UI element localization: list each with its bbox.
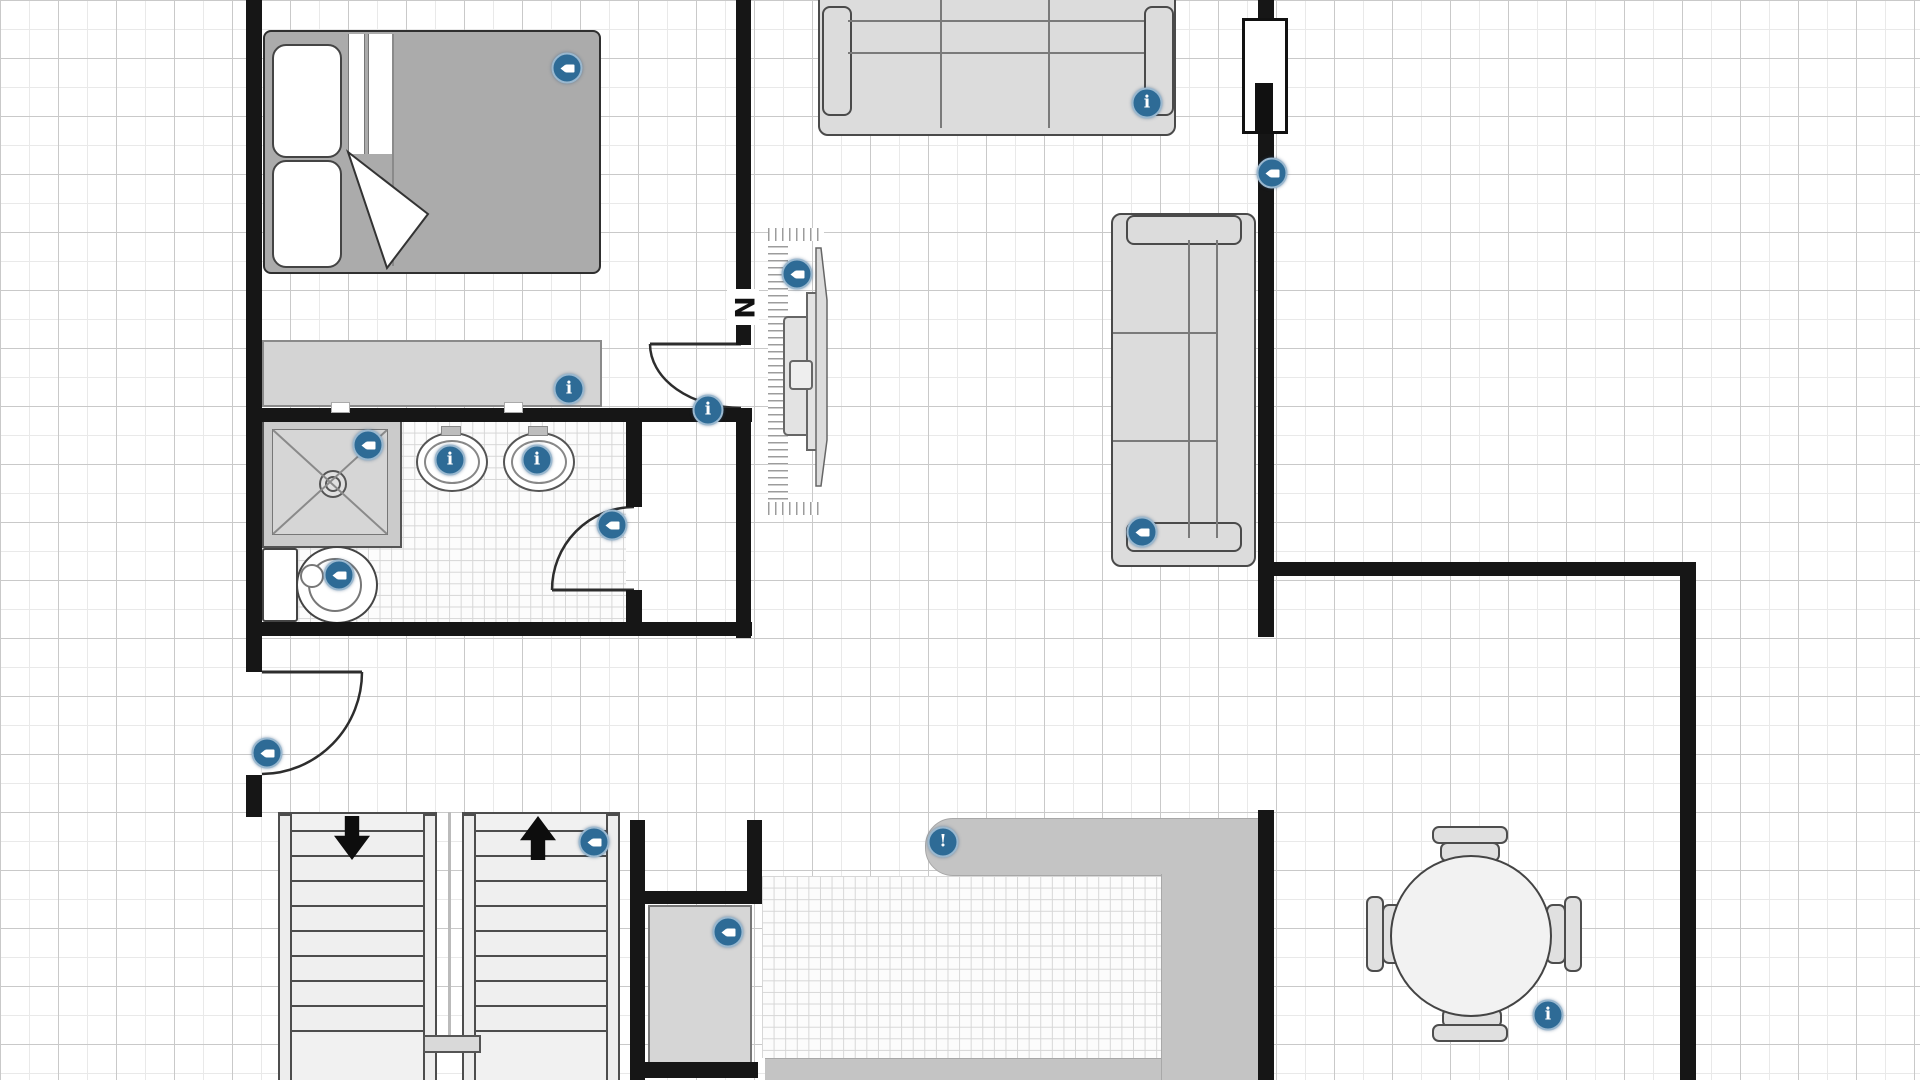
camera-icon [587,838,601,846]
wall-below-cabinet[interactable] [643,1062,758,1078]
wall-east[interactable] [1680,562,1696,1080]
camera-icon [790,270,804,278]
stair-treads [292,830,423,1034]
sofa-top-cushion-divider [1048,0,1050,128]
stair-gap-rail [448,812,451,1042]
fireplace-knob [789,360,813,390]
kitchen-counter-marker[interactable]: ! [928,827,959,858]
shower-marker[interactable] [353,430,384,461]
wall-hall-north[interactable] [1262,562,1694,576]
stair-treads [476,830,606,1034]
camera-icon [605,521,619,529]
info-icon: i [1144,95,1150,112]
sink-right-marker[interactable]: i [522,445,553,476]
fireplace-hatch-top [768,228,824,241]
living-window-marker[interactable] [1257,158,1288,189]
fireplace-marker[interactable] [782,259,813,290]
bed-blanket-edge [392,34,394,266]
wall-center-upper[interactable] [736,0,751,293]
double-bed[interactable] [263,30,601,274]
bed-pillow-bottom [272,160,342,268]
sofa-right-seat-line [1188,240,1190,538]
sofa-top-back-line [848,20,1144,22]
bathroom-door-marker[interactable] [597,510,628,541]
bedroom-door-swing-arc [650,344,741,408]
toilet-marker[interactable] [324,560,355,591]
dining-chair-back [1564,896,1582,972]
dresser-marker[interactable]: i [554,374,585,405]
bed-marker[interactable] [552,53,583,84]
bed-pillow-top [272,44,342,158]
sofa-right[interactable] [1111,213,1256,567]
staircase-down[interactable] [278,812,437,1080]
sofa-top-seat-line [848,52,1144,54]
wall-left-upper[interactable] [246,0,262,672]
north-indicator: N [727,289,759,325]
shower-drain-inner [325,476,341,492]
wall-center-lower[interactable] [736,408,751,638]
toilet-flush [300,564,324,588]
wall-niche-top[interactable] [643,891,755,904]
sink-faucet [528,426,548,436]
kitchen-floor-tiles [762,876,1161,1058]
cabinet-marker[interactable] [713,917,744,948]
stair-landing-bar [423,1035,481,1053]
sofa-right-back-line [1216,240,1218,538]
wall-left-lower[interactable] [246,775,262,817]
sofa-top-marker[interactable]: i [1132,88,1163,119]
stairs-marker[interactable] [579,827,610,858]
info-icon: i [447,452,453,469]
toilet-tank[interactable] [262,548,298,622]
bed-sheet-stripe [348,34,365,154]
info-icon: i [705,402,711,419]
sofa-right-cushion-divider [1113,332,1216,334]
info-icon: i [534,452,540,469]
floor-plan-canvas: N iiiii!i [0,0,1920,1080]
kitchen-counter-bottom[interactable] [765,1058,1161,1080]
camera-icon [560,64,574,72]
sink-faucet [441,426,461,436]
kitchen-counter-top[interactable] [925,818,1260,876]
alert-icon: ! [939,834,946,851]
stair-stringer [278,814,292,1080]
wall-bathroom-south[interactable] [246,622,752,636]
sofa-right-cushion-divider [1113,440,1216,442]
wall-notch [331,402,350,413]
camera-icon [260,749,274,757]
camera-icon [361,441,375,449]
wall-kitchen-west[interactable] [1258,810,1274,1080]
sink-left-marker[interactable]: i [435,445,466,476]
info-icon: i [1545,1007,1551,1024]
camera-icon [1135,528,1149,536]
camera-icon [332,571,346,579]
north-label: N [727,296,758,319]
entry-door-marker[interactable] [252,738,283,769]
wall-bedroom-bathroom-divider[interactable] [246,408,752,422]
info-icon: i [566,381,572,398]
sofa-right-armrest-top [1126,215,1242,245]
wall-center-mid[interactable] [736,323,751,345]
wall-niche-left[interactable] [630,820,645,1080]
camera-icon [721,928,735,936]
sofa-right-marker[interactable] [1127,517,1158,548]
sofa-top-armrest-left [822,6,852,116]
stair-stringer [606,814,620,1080]
camera-icon [1265,169,1279,177]
window-wall-bar [1255,83,1273,134]
dining-table[interactable] [1390,855,1552,1017]
wall-notch [504,402,523,413]
dining-chair-back [1432,1024,1508,1042]
dresser[interactable] [262,340,602,407]
kitchen-counter-right[interactable] [1161,874,1259,1080]
fireplace-hatch-bottom [768,502,824,515]
window[interactable] [1242,18,1288,134]
hallway-wall-marker[interactable]: i [693,395,724,426]
dining-table-marker[interactable]: i [1533,1000,1564,1031]
bed-sheet-stripe [368,34,394,154]
sofa-top-cushion-divider [940,0,942,128]
wall-bathroom-east-upper[interactable] [626,422,642,507]
